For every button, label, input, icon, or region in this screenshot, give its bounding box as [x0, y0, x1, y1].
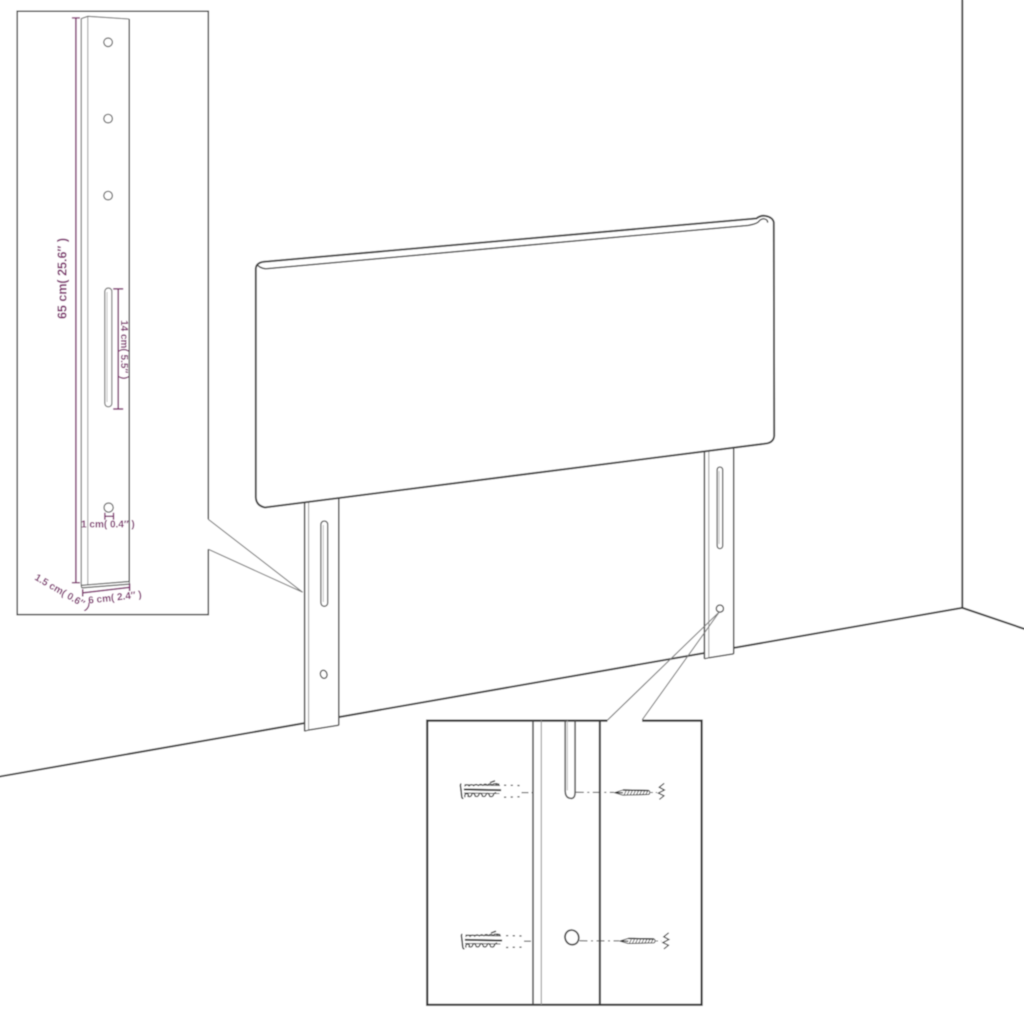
svg-text:65 cm( 25.6″ ): 65 cm( 25.6″ ) [56, 238, 70, 319]
svg-text:1 cm( 0.4″ ): 1 cm( 0.4″ ) [81, 520, 135, 531]
svg-text:14 cm( 5.5″ ): 14 cm( 5.5″ ) [118, 320, 129, 379]
